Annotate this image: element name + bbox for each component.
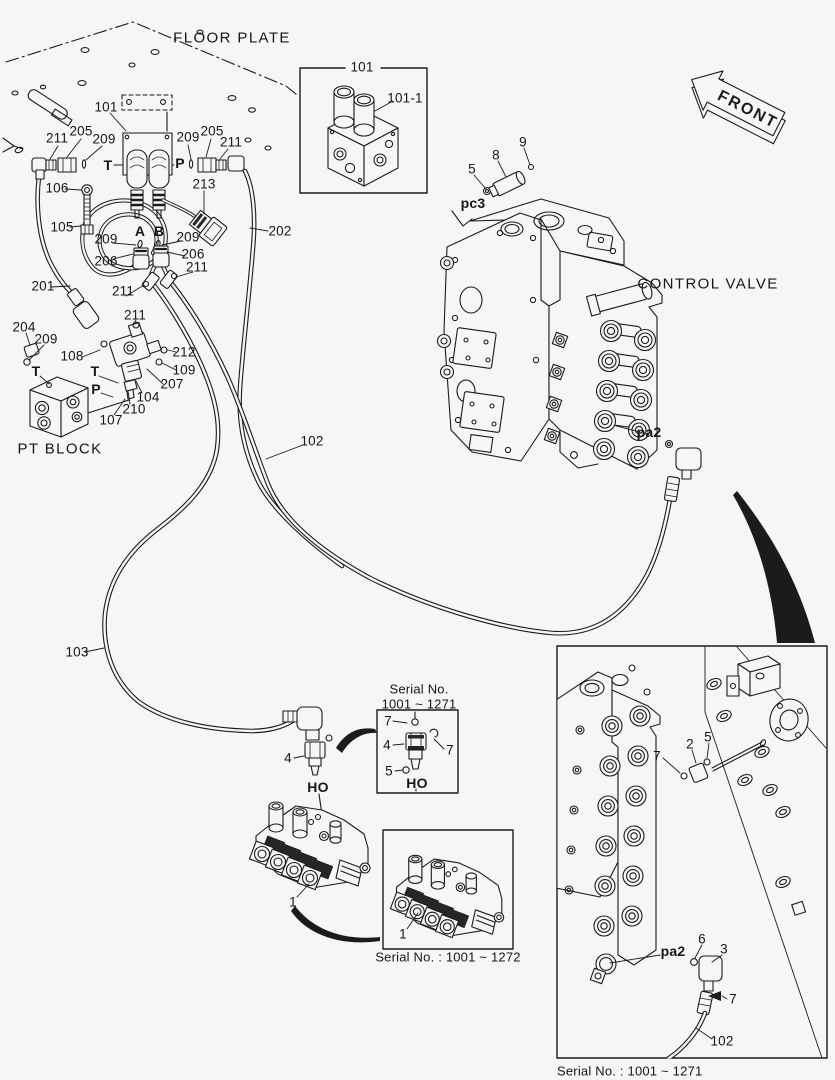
ho-elbow-fitting <box>283 707 332 775</box>
pilot-valve-101 <box>32 95 244 269</box>
mount-pattern <box>122 95 172 110</box>
fitting-row-left <box>32 158 123 179</box>
hose-201 <box>38 176 74 295</box>
loose-parts <box>681 656 813 915</box>
control-valve <box>438 199 663 469</box>
pt-block <box>30 377 88 437</box>
hose-loop <box>82 200 168 280</box>
flange-disc <box>765 695 812 745</box>
bracket-block <box>727 656 780 696</box>
inset-manifold <box>383 830 513 949</box>
arrow-to-box <box>336 728 377 753</box>
washer-bolt <box>81 185 93 234</box>
inset-pa2-fitting <box>665 956 722 1061</box>
connector-213 <box>163 200 228 247</box>
manifold-arrow <box>291 906 380 942</box>
manifold-main <box>249 802 370 890</box>
serial-fitting-box <box>336 710 458 793</box>
inset-101 <box>300 68 427 193</box>
diagram-art: FRONT <box>0 0 835 1080</box>
clip-part <box>3 138 24 154</box>
inset-valve <box>556 665 660 984</box>
big-arrow <box>733 491 815 643</box>
front-arrow: FRONT <box>678 60 792 152</box>
pc3-bracket <box>452 211 472 226</box>
hose-202 <box>240 171 342 566</box>
fitting-row-right <box>172 156 244 172</box>
inset-control-valve-box <box>556 491 827 1061</box>
pa2-fitting <box>664 441 701 502</box>
plug-204 <box>24 343 40 365</box>
floor-plate-slot <box>26 88 69 121</box>
parts-diagram-page: FRONT <box>0 0 835 1080</box>
